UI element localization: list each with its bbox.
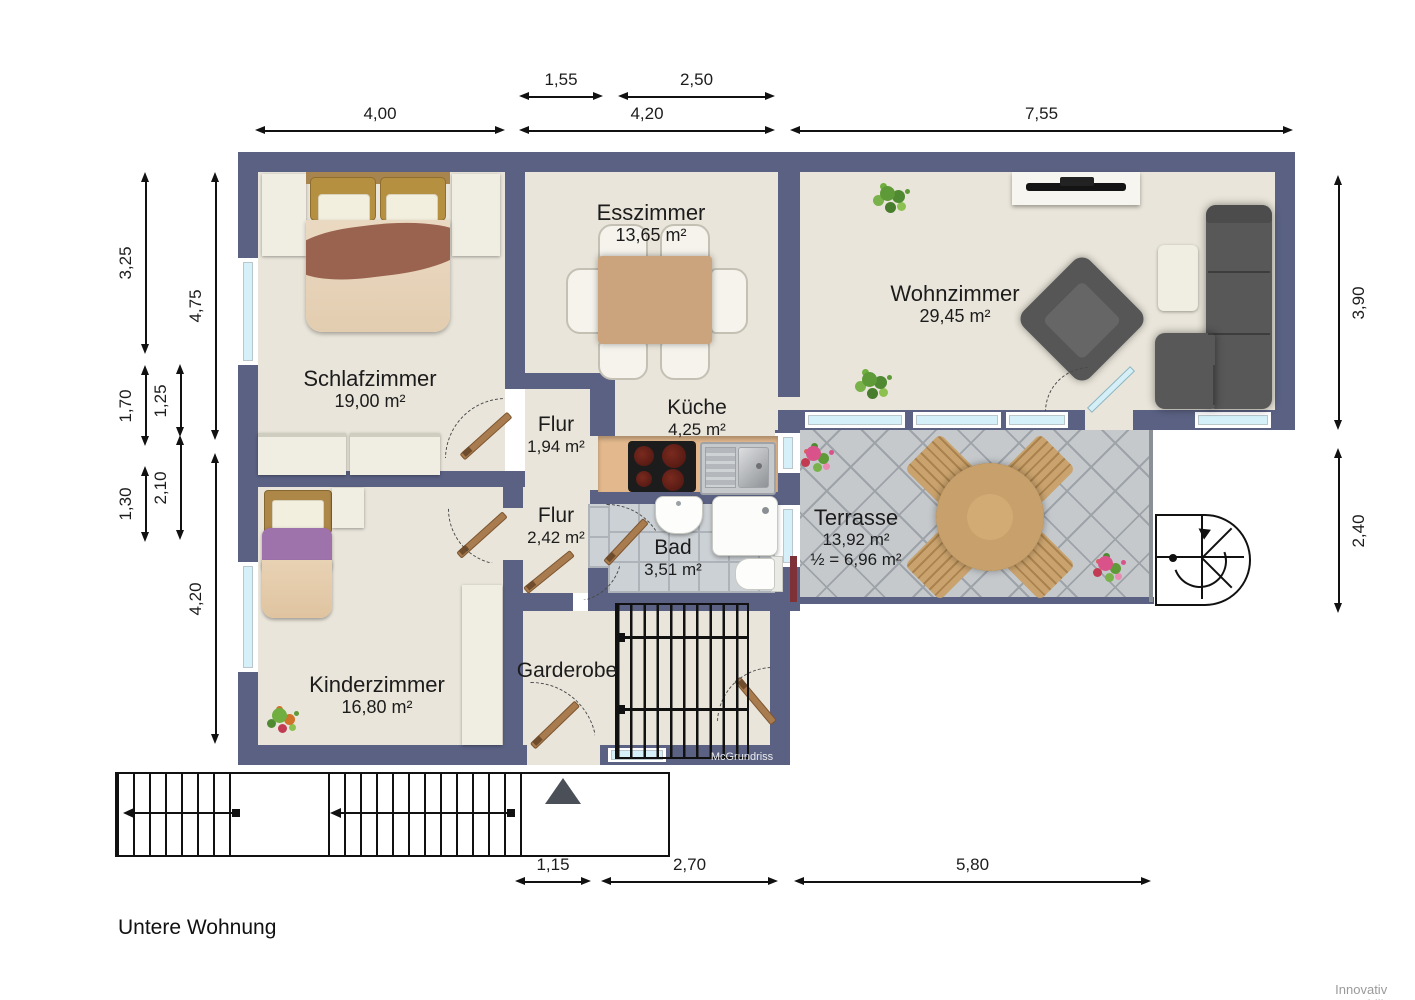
credit: Innovativ Immobilien xyxy=(1335,982,1398,1000)
room-label-flur-gross: Flur 2,42 m² xyxy=(527,504,585,548)
plant-icon xyxy=(862,372,877,387)
door-swing-arc xyxy=(445,398,505,458)
door-swing-arc xyxy=(572,552,620,600)
spiral-staircase-icon xyxy=(1155,514,1251,606)
toilet xyxy=(735,556,781,590)
room-label-garderobe: Garderobe xyxy=(517,659,617,683)
nightstand xyxy=(452,174,500,256)
doorway-floor-terrace xyxy=(1085,410,1133,430)
dimension-top: 2,50 xyxy=(618,64,775,100)
terrace-edge-right xyxy=(1149,430,1153,602)
dimension-top: 7,55 xyxy=(790,98,1293,134)
dimension-left: 3,25 xyxy=(114,172,154,354)
floor-plan: Schlafzimmer 19,00 m² Esszimmer 13,65 m²… xyxy=(0,0,1415,1000)
dining-table xyxy=(598,256,712,344)
dimension-bottom: 5,80 xyxy=(794,849,1151,885)
dimension-left: 4,20 xyxy=(184,453,224,744)
dimension-bottom: 2,70 xyxy=(601,849,778,885)
room-label-kinderzimmer: Kinderzimmer 16,80 m² xyxy=(309,672,445,718)
tv-sideboard xyxy=(1012,172,1140,205)
plan-title: Untere Wohnung xyxy=(118,916,276,940)
kitchen-sink xyxy=(700,442,776,495)
window xyxy=(775,433,800,473)
dimension-bottom: 1,15 xyxy=(515,849,591,885)
wall-kinder-flur-a xyxy=(503,487,523,508)
entrance-arrow-icon xyxy=(545,778,581,804)
flowers-icon xyxy=(806,446,821,461)
door-swing-arc xyxy=(448,508,503,563)
window xyxy=(1006,412,1068,428)
wall-ess-wohn xyxy=(778,172,800,397)
room-label-kueche: Küche 4,25 m² xyxy=(667,396,727,440)
dimension-right: 3,90 xyxy=(1331,175,1371,430)
wall-schlaf-ess xyxy=(505,172,525,385)
window xyxy=(1195,412,1271,428)
wall-stair-right xyxy=(770,611,790,765)
plant-icon xyxy=(272,708,287,723)
room-label-terrasse: Terrasse 13,92 m² ½ = 6,96 m² xyxy=(810,505,901,569)
door-swing-arc xyxy=(1045,367,1089,411)
dining-chair xyxy=(598,340,648,380)
double-bed xyxy=(306,172,450,332)
window xyxy=(238,258,258,365)
doorway-floor xyxy=(778,397,800,410)
dimension-left: 1,30 xyxy=(114,466,154,542)
dimension-left: 4,75 xyxy=(184,172,224,440)
room-label-flur-klein: Flur 1,94 m² xyxy=(527,413,585,457)
flowers-icon xyxy=(1098,556,1113,571)
door-swing-arc xyxy=(530,682,595,747)
dimension-top: 4,20 xyxy=(519,98,775,134)
dimension-top: 4,00 xyxy=(255,98,505,134)
dining-chair xyxy=(710,268,748,334)
dimension-left: 1,25 xyxy=(149,364,189,437)
watermark: McGrundriss xyxy=(711,751,773,763)
plant-icon xyxy=(880,186,895,201)
washbasin xyxy=(655,496,703,534)
wall-top xyxy=(238,152,1295,172)
window xyxy=(913,412,1001,428)
wall-right xyxy=(1275,172,1295,430)
flower-box xyxy=(790,556,797,602)
shelf xyxy=(332,488,364,528)
room-label-bad: Bad 3,51 m² xyxy=(644,536,702,580)
bed-blanket xyxy=(306,220,450,332)
dimension-left: 1,70 xyxy=(114,365,154,446)
bed-cover xyxy=(306,220,450,286)
wall-flur-garderobe xyxy=(518,593,573,611)
shower-tray xyxy=(712,496,778,556)
nightstand xyxy=(262,174,306,256)
cooktop xyxy=(628,441,696,492)
wall-kueche-left xyxy=(590,389,615,436)
doorway-floor xyxy=(527,745,600,765)
terrace-table xyxy=(936,463,1044,571)
dresser xyxy=(258,433,346,475)
wardrobe xyxy=(462,585,502,745)
corner-sofa xyxy=(1155,205,1272,409)
dimension-left: 2,10 xyxy=(149,435,189,540)
window xyxy=(805,412,905,428)
dresser xyxy=(350,433,440,475)
pillow xyxy=(272,500,324,530)
dining-chair xyxy=(660,340,710,380)
window xyxy=(238,562,258,672)
exterior-staircase xyxy=(115,772,670,857)
dimension-top: 1,55 xyxy=(519,64,603,100)
room-label-schlafzimmer: Schlafzimmer 19,00 m² xyxy=(303,366,436,412)
tv xyxy=(1060,177,1094,186)
wall-flur-ess xyxy=(505,373,615,389)
bed-blanket xyxy=(262,560,332,618)
room-label-esszimmer: Esszimmer 13,65 m² xyxy=(597,200,706,246)
single-bed xyxy=(262,488,334,618)
interior-staircase xyxy=(615,603,749,759)
wall-bottom-kinder xyxy=(238,745,527,765)
room-label-wohnzimmer: Wohnzimmer 29,45 m² xyxy=(890,281,1019,327)
dimension-right: 2,40 xyxy=(1331,448,1371,613)
terrace-edge-bottom xyxy=(790,597,1154,604)
